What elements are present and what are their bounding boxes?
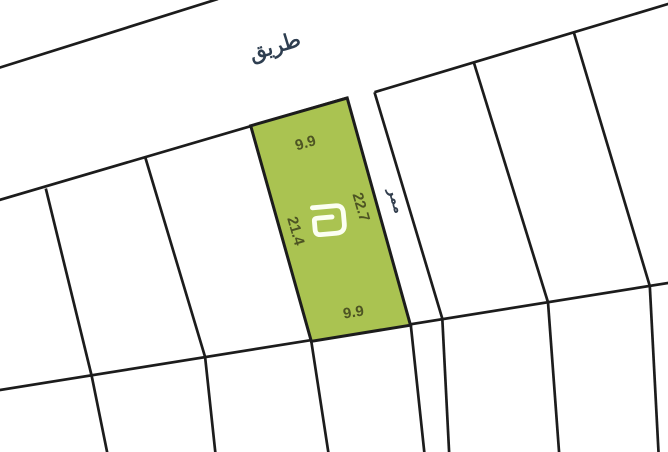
svg-text:9.9: 9.9 xyxy=(342,302,365,322)
